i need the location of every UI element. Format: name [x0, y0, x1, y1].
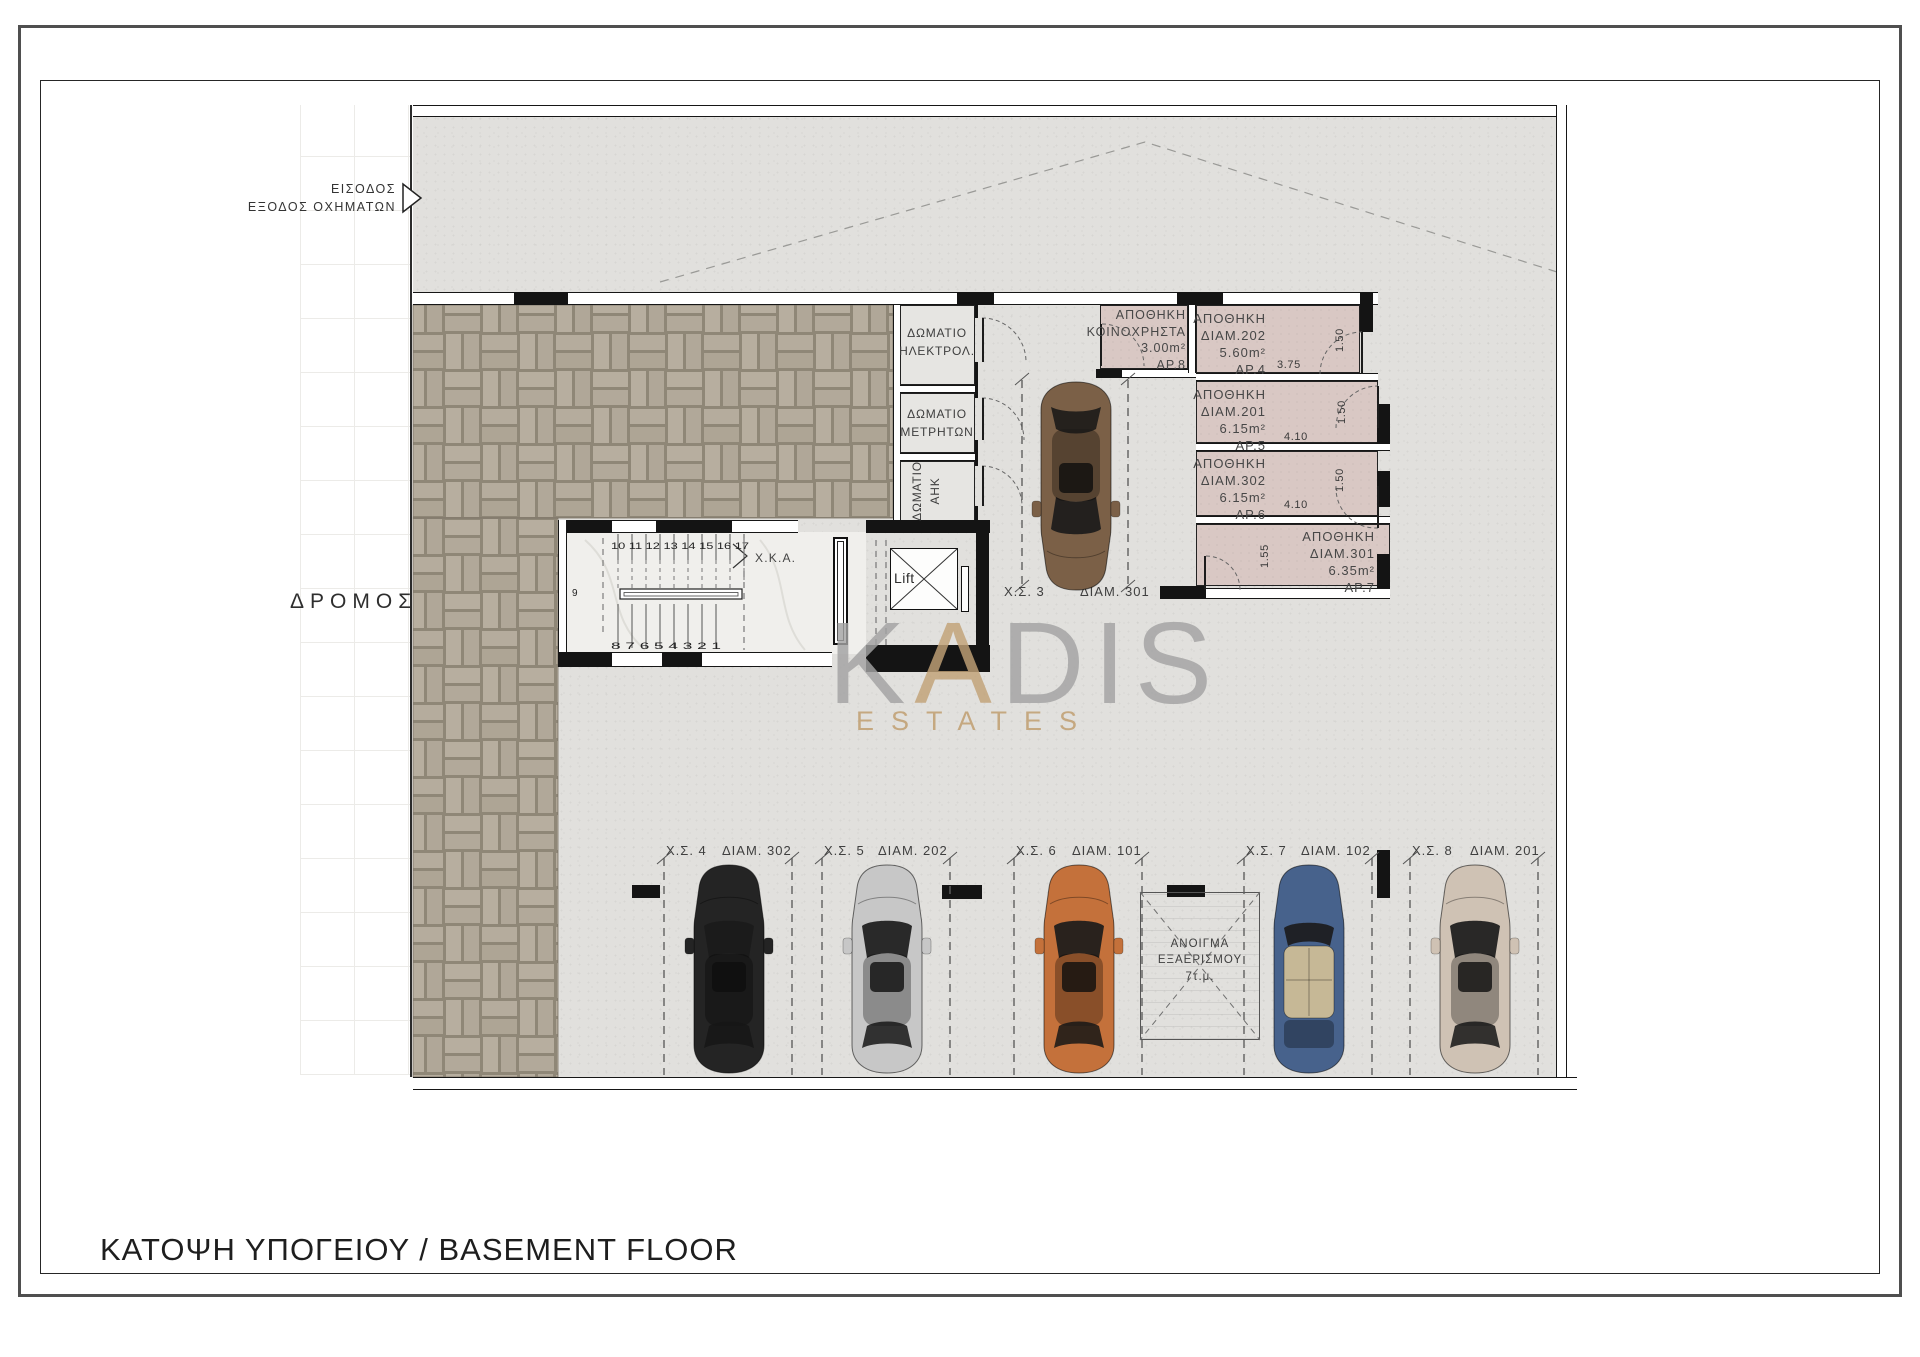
wall-bottom: [413, 1077, 1577, 1090]
car-spot-5: [842, 862, 932, 1077]
basement-floor-area: [413, 105, 1567, 1077]
spot-6-label: Χ.Σ. 6: [1016, 843, 1057, 858]
vent-opening: [1140, 892, 1260, 1040]
wall-column: [957, 292, 994, 305]
storage-302-label: ΑΠΟΘΗΚΗ ΔΙΑΜ.302 6.15m² ΑΡ.6: [1193, 455, 1266, 524]
wall-stub: [1377, 850, 1390, 898]
spot-5-label: Χ.Σ. 5: [824, 843, 865, 858]
spot-4-unit: ΔΙΑΜ. 302: [722, 843, 792, 858]
wall-segment: [1360, 292, 1373, 332]
vent-line2: ΕΞΑΕΡΙΣΜΟΥ: [1140, 954, 1260, 966]
wall-segment: [662, 652, 702, 667]
car-spot-7-convertible: [1264, 862, 1354, 1077]
car-spot-8: [1430, 862, 1520, 1077]
dim-410: 4.10: [1284, 431, 1308, 443]
storage-201-label: ΑΠΟΘΗΚΗ ΔΙΑΜ.201 6.15m² ΑΡ.5: [1193, 386, 1266, 455]
dim-150: 1.50: [1336, 400, 1348, 424]
dim-155: 1.55: [1259, 544, 1271, 568]
spot-6-unit: ΔΙΑΜ. 101: [1072, 843, 1142, 858]
wall-segment: [566, 520, 612, 533]
entrance-line2: ΕΞΟΔΟΣ ΟΧΗΜΑΤΩΝ: [248, 198, 396, 216]
watermark-subtitle: ESTATES: [856, 706, 1094, 737]
room-ahk-label: ΔΩΜΑΤΙΟ ΑΗΚ: [908, 460, 944, 522]
spot-7-label: Χ.Σ. 7: [1246, 843, 1287, 858]
wall-segment: [656, 520, 732, 533]
spot-8-label: Χ.Σ. 8: [1412, 843, 1453, 858]
wall-stair-left: [558, 520, 567, 656]
vent-line3: 7τ.μ.: [1140, 971, 1260, 983]
spot-5-unit: ΔΙΑΜ. 202: [878, 843, 948, 858]
wall-segment: [975, 440, 978, 466]
car-spot-3: [1031, 378, 1121, 593]
wall-top: [413, 105, 1567, 117]
drawing-sheet: 10 11 12 13 14 15 16 17 9 8 7 6 5 4 3 2 …: [0, 0, 1920, 1357]
dim-410: 4.10: [1284, 499, 1308, 511]
lift-label: Lift: [894, 570, 915, 586]
car-spot-4: [684, 862, 774, 1077]
road-label: ΔΡΟΜΟΣ: [290, 590, 417, 614]
wall-stub: [632, 885, 660, 898]
wall-right: [1556, 105, 1567, 1077]
wall-segment: [975, 305, 978, 318]
spot-4-label: Χ.Σ. 4: [666, 843, 707, 858]
corridor-label: Χ.Κ.Α.: [755, 551, 796, 565]
dim-150: 1.50: [1334, 328, 1346, 352]
wall-column: [514, 292, 568, 305]
storage-301-label: ΑΠΟΘΗΚΗ ΔΙΑΜ.301 6.35m² ΑΡ.7: [1302, 528, 1375, 597]
wall-column: [1177, 292, 1223, 305]
wall-stub: [942, 885, 982, 899]
sheet-title: ΚΑΤΟΨΗ ΥΠΟΓΕΙΟΥ / BASEMENT FLOOR: [100, 1232, 738, 1268]
entrance-line1: ΕΙΣΟΔΟΣ: [248, 180, 396, 198]
storage-202-label: ΑΠΟΘΗΚΗ ΔΙΑΜ.202 5.60m² ΑΡ.4: [1193, 310, 1266, 379]
entrance-label: ΕΙΣΟΔΟΣ ΕΞΟΔΟΣ ΟΧΗΜΑΤΩΝ: [248, 180, 396, 216]
wall-segment: [1377, 404, 1390, 444]
car-spot-6: [1034, 862, 1124, 1077]
wall-segment: [975, 362, 978, 398]
spot-8-unit: ΔΙΑΜ. 201: [1470, 843, 1540, 858]
dim-150: 1.50: [1334, 468, 1346, 492]
vent-line1: ΑΝΟΙΓΜΑ: [1140, 938, 1260, 950]
room-electrical-label: ΔΩΜΑΤΙΟ ΗΛΕΚΤΡΟΛ.: [895, 324, 979, 360]
room-meters-label: ΔΩΜΑΤΙΟ ΜΕΤΡΗΤΩΝ: [895, 405, 979, 441]
dim-375: 3.75: [1277, 359, 1301, 371]
wall-room-divider: [900, 385, 976, 393]
wall-segment: [1377, 471, 1390, 507]
wall-segment: [558, 652, 612, 667]
storage-communal-label: ΑΠΟΘΗΚΗ ΚΟΙΝΟΧΡΗΣΤΑ 3.00m² ΑΡ.8: [1087, 307, 1186, 373]
spot-7-unit: ΔΙΑΜ. 102: [1301, 843, 1371, 858]
